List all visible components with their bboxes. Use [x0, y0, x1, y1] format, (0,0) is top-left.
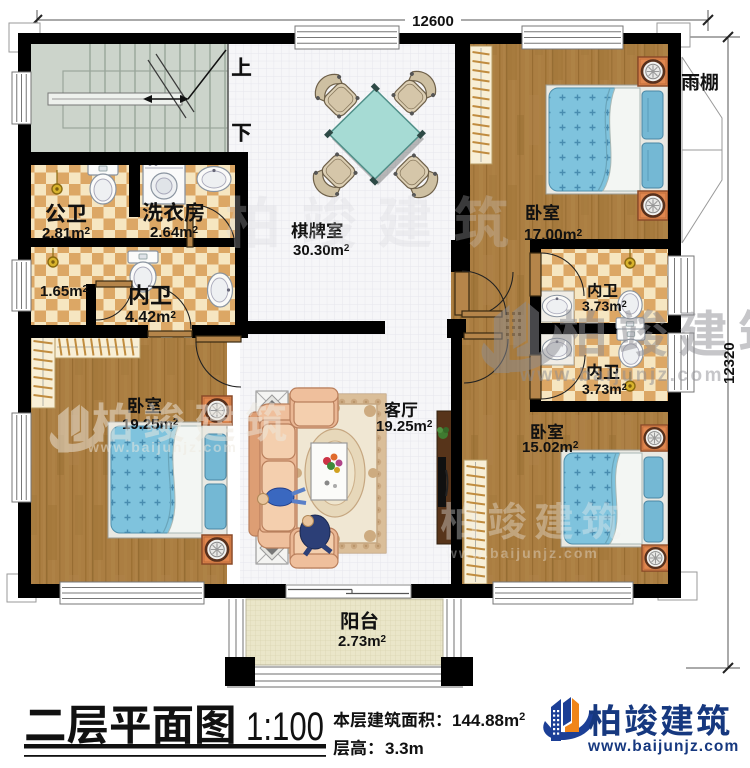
svg-text:1.65m2: 1.65m2	[40, 283, 89, 300]
svg-text:3.3m: 3.3m	[385, 739, 424, 758]
svg-text:19.25m2: 19.25m2	[376, 418, 433, 435]
svg-text:2.64m2: 2.64m2	[150, 224, 199, 241]
svg-text:15.02m2: 15.02m2	[522, 439, 579, 456]
svg-text:www.baijunjz.com: www.baijunjz.com	[87, 439, 238, 455]
svg-text:30.30m2: 30.30m2	[293, 242, 350, 259]
svg-text:2.81m2: 2.81m2	[42, 225, 91, 242]
svg-text:12600: 12600	[412, 13, 454, 30]
svg-text:www.baijunjz.com: www.baijunjz.com	[519, 365, 724, 386]
svg-text:4.42m2: 4.42m2	[125, 309, 176, 326]
svg-text:144.88m2: 144.88m2	[452, 711, 525, 730]
svg-text:2.73m2: 2.73m2	[338, 633, 387, 650]
svg-text:www.baijunjz.com: www.baijunjz.com	[445, 545, 599, 561]
svg-text:www.baijunjz.com: www.baijunjz.com	[587, 738, 739, 755]
svg-text:1:100: 1:100	[246, 705, 324, 749]
svg-text:17.00m2: 17.00m2	[524, 227, 583, 244]
